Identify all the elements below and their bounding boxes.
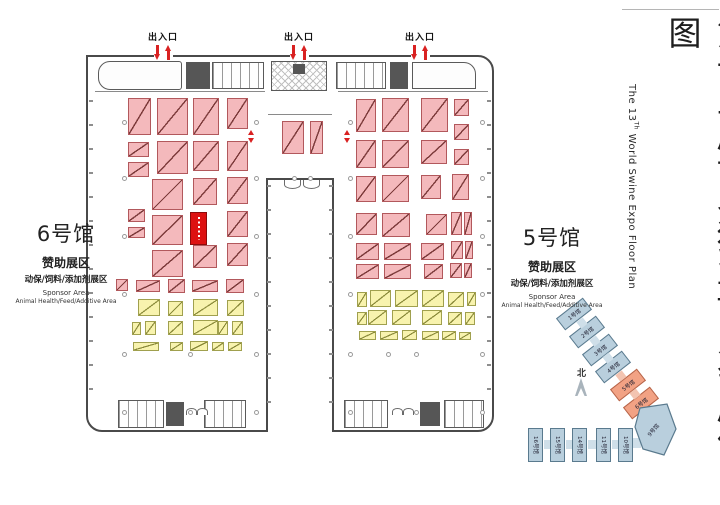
column-dot bbox=[348, 410, 353, 415]
booth bbox=[421, 175, 441, 199]
booth bbox=[465, 241, 473, 259]
booth-highlighted bbox=[190, 212, 207, 245]
booth bbox=[132, 322, 141, 335]
wall-line bbox=[338, 91, 488, 92]
booth bbox=[193, 141, 219, 171]
booth bbox=[193, 245, 217, 268]
hall5-label-block: 5号馆 赞助展区 动保/饲料/添加剂展区 Sponsor Area Animal… bbox=[502, 222, 603, 309]
booth bbox=[356, 99, 376, 132]
booth bbox=[356, 140, 376, 168]
arrow-head bbox=[154, 54, 160, 60]
booth bbox=[193, 299, 218, 316]
minimap-hall: 15号馆 bbox=[550, 428, 565, 462]
column-dot bbox=[480, 352, 485, 357]
column-dot bbox=[254, 234, 259, 239]
booth bbox=[359, 331, 376, 340]
arrow-head bbox=[290, 54, 296, 60]
architecture-stair-block bbox=[420, 402, 440, 426]
entrance-arrows-icon bbox=[284, 45, 314, 60]
arrow-head bbox=[301, 45, 307, 51]
booth bbox=[227, 141, 248, 171]
booth bbox=[465, 312, 475, 325]
column-dot bbox=[254, 292, 259, 297]
column-dot bbox=[348, 120, 353, 125]
hall6-sponsor-en: Sponsor Area bbox=[16, 289, 117, 297]
hall6-name: 6号馆 bbox=[16, 218, 117, 248]
architecture-stair-block bbox=[293, 64, 305, 74]
hall6-sponsor-detail-en: Animal Health/Feed/Additive Area bbox=[16, 298, 117, 305]
architecture-room bbox=[412, 62, 476, 89]
arrow-head bbox=[165, 45, 171, 51]
booth bbox=[190, 341, 208, 351]
column-dot bbox=[254, 352, 259, 357]
booth bbox=[356, 176, 376, 202]
booth bbox=[384, 243, 411, 260]
wall-line bbox=[268, 114, 332, 115]
column-dot bbox=[414, 410, 419, 415]
hall6-zone-detail: 动保/饲料/添加剂展区 bbox=[16, 273, 117, 285]
arrow-head bbox=[411, 54, 417, 60]
booth bbox=[193, 178, 217, 205]
booth bbox=[421, 243, 444, 260]
arrow-down-icon bbox=[290, 45, 297, 60]
minimap-hall-label: 14号馆 bbox=[576, 436, 584, 454]
booth bbox=[356, 264, 379, 279]
booth bbox=[382, 98, 409, 132]
booth bbox=[395, 290, 418, 307]
booth bbox=[218, 321, 228, 335]
column-dot bbox=[292, 176, 297, 181]
booth bbox=[193, 320, 218, 335]
hall5-zone-detail: 动保/饲料/添加剂展区 bbox=[502, 277, 603, 289]
arrow-up-icon bbox=[422, 45, 429, 60]
column-dot bbox=[480, 234, 485, 239]
door-arc bbox=[197, 408, 208, 415]
booth bbox=[227, 243, 248, 266]
hall5-name: 5号馆 bbox=[502, 222, 603, 252]
booth bbox=[464, 212, 472, 235]
column-dot bbox=[480, 176, 485, 181]
booth bbox=[424, 264, 443, 279]
column-dot bbox=[480, 410, 485, 415]
booth bbox=[421, 140, 447, 164]
booth bbox=[357, 312, 367, 325]
entrance-label: 出入口 bbox=[405, 30, 435, 43]
column-dot bbox=[480, 292, 485, 297]
booth bbox=[212, 342, 224, 351]
booth bbox=[232, 321, 243, 335]
architecture-stair-block bbox=[390, 62, 408, 89]
booth bbox=[450, 263, 462, 278]
booth bbox=[422, 290, 444, 307]
arrow-head bbox=[422, 45, 428, 51]
booth bbox=[116, 279, 128, 291]
minimap-hall-label: 11号馆 bbox=[600, 436, 608, 454]
page-title-en-prefix: The 13 bbox=[626, 84, 637, 122]
booth bbox=[128, 209, 145, 222]
booth bbox=[128, 142, 149, 157]
booth bbox=[310, 121, 323, 154]
entrance-marker: 出入口 bbox=[284, 30, 314, 60]
booth bbox=[128, 162, 149, 177]
page-title-cn: 第十三届世界猪业博览会展位图 bbox=[658, 16, 720, 491]
booth bbox=[421, 98, 448, 132]
booth bbox=[467, 292, 476, 306]
arrow-down-icon bbox=[154, 45, 161, 60]
booth bbox=[228, 342, 242, 351]
column-dot bbox=[480, 120, 485, 125]
booth bbox=[152, 215, 183, 245]
floor-plan-page: 出入口出入口出入口 1号馆2号馆3号馆4号馆5号馆6号馆16号馆15号馆14号馆… bbox=[0, 0, 720, 505]
booth bbox=[451, 212, 462, 235]
booth bbox=[128, 227, 145, 238]
column-dot bbox=[254, 120, 259, 125]
inner-entrance-arrows-icon bbox=[344, 130, 351, 143]
booth bbox=[464, 263, 472, 278]
booth bbox=[128, 98, 151, 135]
booth bbox=[152, 250, 183, 277]
booth bbox=[382, 213, 410, 237]
page-title-en-rest: World Swine Expo Floor Plan bbox=[626, 130, 637, 289]
booth bbox=[454, 99, 469, 116]
booth bbox=[382, 175, 409, 202]
booth bbox=[282, 121, 304, 154]
booth bbox=[448, 292, 464, 307]
wall-ticks bbox=[487, 100, 491, 400]
arrow-shaft bbox=[303, 50, 306, 60]
architecture-room bbox=[444, 400, 484, 428]
inner-entrance-arrows-icon bbox=[248, 130, 255, 143]
column-dot bbox=[414, 352, 419, 357]
arrow-up-icon bbox=[165, 45, 172, 60]
hall5-sponsor-detail-en: Animal Health/Feed/Additive Area bbox=[502, 302, 603, 309]
booth bbox=[136, 280, 160, 292]
column-dot bbox=[188, 352, 193, 357]
booth bbox=[168, 301, 183, 316]
wall-ticks bbox=[267, 185, 271, 425]
booth bbox=[454, 149, 469, 165]
booth bbox=[392, 310, 411, 325]
column-dot bbox=[122, 234, 127, 239]
column-dot bbox=[348, 176, 353, 181]
booth bbox=[133, 342, 159, 351]
architecture-room bbox=[204, 400, 246, 428]
booth bbox=[170, 342, 183, 351]
booth bbox=[356, 213, 377, 235]
booth bbox=[402, 330, 417, 340]
column-dot bbox=[122, 120, 127, 125]
booth bbox=[448, 312, 462, 325]
hall5-sponsor-en: Sponsor Area bbox=[502, 293, 603, 301]
column-dot bbox=[308, 176, 313, 181]
booth bbox=[168, 279, 185, 293]
booth bbox=[442, 331, 456, 340]
hall5-zone: 赞助展区 bbox=[502, 258, 603, 275]
architecture-room bbox=[336, 62, 386, 89]
door-arc bbox=[284, 180, 301, 189]
booth bbox=[454, 124, 469, 140]
booth bbox=[157, 98, 188, 135]
wall-line bbox=[95, 91, 265, 92]
booth bbox=[227, 98, 248, 129]
hall6-zone: 赞助展区 bbox=[16, 254, 117, 271]
booth bbox=[227, 211, 248, 237]
column-dot bbox=[348, 234, 353, 239]
column-dot bbox=[122, 292, 127, 297]
door-arc bbox=[403, 408, 414, 415]
booth bbox=[357, 292, 367, 307]
entrance-label: 出入口 bbox=[284, 30, 314, 43]
sheet-edge-line bbox=[622, 9, 719, 10]
booth bbox=[452, 174, 469, 200]
column-dot bbox=[122, 352, 127, 357]
minimap-hall: 11号馆 bbox=[596, 428, 611, 462]
door-arc bbox=[303, 180, 320, 189]
booth bbox=[422, 310, 442, 325]
column-dot bbox=[348, 292, 353, 297]
compass-arrow-notch bbox=[577, 388, 585, 397]
entrance-arrows-icon bbox=[148, 45, 178, 60]
booth bbox=[227, 300, 244, 316]
architecture-room bbox=[212, 62, 264, 89]
minimap-hall: 14号馆 bbox=[572, 428, 587, 462]
entrance-label: 出入口 bbox=[148, 30, 178, 43]
booth bbox=[451, 241, 463, 259]
booth bbox=[192, 280, 218, 292]
column-dot bbox=[122, 410, 127, 415]
arrow-up-icon bbox=[301, 45, 308, 60]
door-arc bbox=[392, 408, 403, 415]
minimap-hall-label: 16号馆 bbox=[532, 436, 540, 454]
booth bbox=[380, 331, 398, 340]
booth bbox=[426, 214, 447, 235]
arrow-shaft bbox=[424, 50, 427, 60]
column-dot bbox=[188, 410, 193, 415]
booth bbox=[370, 290, 391, 307]
booth bbox=[422, 331, 439, 340]
minimap-hall-label: 10号馆 bbox=[622, 436, 630, 454]
architecture-stair-block bbox=[186, 62, 210, 89]
minimap-hall: 10号馆 bbox=[618, 428, 633, 462]
page-title-en: The 13Th World Swine Expo Floor Plan bbox=[626, 84, 639, 314]
arrow-down-icon bbox=[411, 45, 418, 60]
booth bbox=[226, 279, 244, 293]
booth bbox=[459, 332, 471, 340]
column-dot bbox=[122, 176, 127, 181]
entrance-arrows-icon bbox=[405, 45, 435, 60]
entrance-marker: 出入口 bbox=[148, 30, 178, 60]
wall-ticks bbox=[329, 185, 333, 425]
booth bbox=[193, 98, 219, 135]
minimap-hall: 16号馆 bbox=[528, 428, 543, 462]
column-dot bbox=[254, 176, 259, 181]
booth bbox=[157, 141, 188, 174]
booth bbox=[138, 299, 160, 316]
booth bbox=[168, 321, 183, 335]
hall6-label-block: 6号馆 赞助展区 动保/饲料/添加剂展区 Sponsor Area Animal… bbox=[16, 218, 117, 305]
booth bbox=[368, 310, 387, 325]
booth bbox=[145, 321, 156, 335]
booth bbox=[227, 177, 248, 204]
column-dot bbox=[348, 352, 353, 357]
page-title-en-sup: Th bbox=[632, 122, 639, 130]
column-dot bbox=[254, 410, 259, 415]
booth bbox=[384, 264, 411, 279]
entrance-marker: 出入口 bbox=[405, 30, 435, 60]
architecture-room bbox=[98, 61, 182, 90]
architecture-stair-block bbox=[166, 402, 184, 426]
column-dot bbox=[386, 352, 391, 357]
booth bbox=[356, 243, 379, 260]
booth bbox=[382, 140, 409, 168]
booth bbox=[152, 179, 183, 210]
minimap-hall-label: 15号馆 bbox=[554, 436, 562, 454]
arrow-shaft bbox=[167, 50, 170, 60]
